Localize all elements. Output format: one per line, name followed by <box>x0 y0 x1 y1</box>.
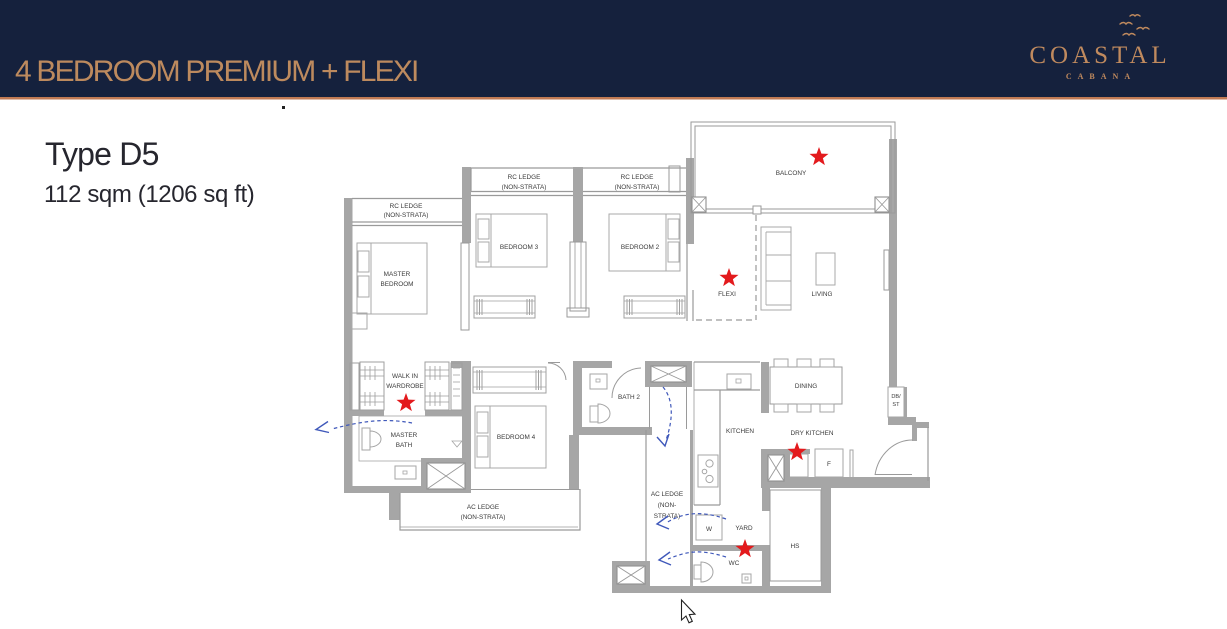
svg-text:CABANA: CABANA <box>1066 72 1136 81</box>
svg-text:DRY KITCHEN: DRY KITCHEN <box>790 430 833 437</box>
svg-text:FLEXI: FLEXI <box>718 291 736 298</box>
svg-text:WC: WC <box>729 560 740 567</box>
svg-text:MASTER: MASTER <box>384 271 411 278</box>
svg-text:BATH: BATH <box>396 442 413 449</box>
svg-text:ST: ST <box>892 402 900 408</box>
svg-text:HS: HS <box>791 543 800 550</box>
svg-text:KITCHEN: KITCHEN <box>726 428 754 435</box>
svg-text:WALK IN: WALK IN <box>392 373 418 380</box>
svg-text:MASTER: MASTER <box>391 432 418 439</box>
svg-text:RC LEDGE: RC LEDGE <box>390 203 423 210</box>
svg-text:(NON-: (NON- <box>658 502 676 509</box>
svg-text:AC LEDGE: AC LEDGE <box>651 491 683 498</box>
svg-text:BALCONY: BALCONY <box>776 170 807 177</box>
svg-text:WARDROBE: WARDROBE <box>386 383 423 390</box>
svg-text:BEDROOM 3: BEDROOM 3 <box>500 244 539 251</box>
svg-text:RC LEDGE: RC LEDGE <box>508 174 541 181</box>
svg-text:(NON-STRATA): (NON-STRATA) <box>502 184 547 191</box>
svg-text:LIVING: LIVING <box>812 291 833 298</box>
svg-text:W: W <box>706 526 713 533</box>
svg-text:BEDROOM: BEDROOM <box>380 281 413 288</box>
svg-text:(NON-STRATA): (NON-STRATA) <box>384 212 429 219</box>
svg-text:Type D5: Type D5 <box>45 136 159 172</box>
svg-text:BEDROOM 4: BEDROOM 4 <box>497 434 536 441</box>
svg-text:(NON-STRATA): (NON-STRATA) <box>461 514 506 521</box>
svg-text:YARD: YARD <box>735 525 753 532</box>
svg-text:(NON-STRATA): (NON-STRATA) <box>615 184 660 191</box>
svg-text:BATH 2: BATH 2 <box>618 394 640 401</box>
svg-text:112 sqm (1206 sq ft): 112 sqm (1206 sq ft) <box>44 181 254 208</box>
svg-text:4 BEDROOM PREMIUM + FLEXI: 4 BEDROOM PREMIUM + FLEXI <box>15 55 418 88</box>
svg-text:AC LEDGE: AC LEDGE <box>467 504 499 511</box>
svg-text:BEDROOM 2: BEDROOM 2 <box>621 244 660 251</box>
svg-text:COASTAL: COASTAL <box>1029 42 1170 69</box>
svg-text:DB/: DB/ <box>891 394 901 400</box>
svg-text:RC LEDGE: RC LEDGE <box>621 174 654 181</box>
svg-text:F: F <box>827 461 831 468</box>
svg-text:DINING: DINING <box>795 383 817 390</box>
